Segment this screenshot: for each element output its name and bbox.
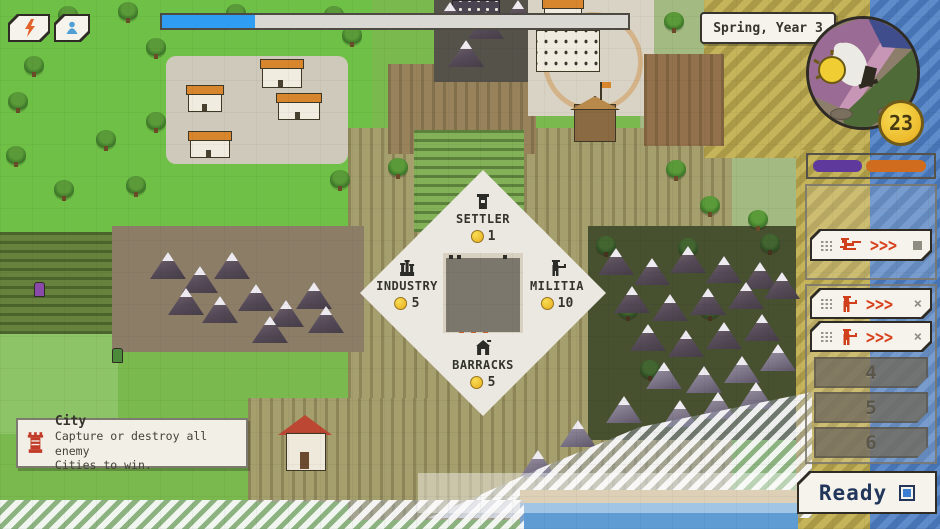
hold-icon[interactable]: [913, 241, 922, 250]
queue-slot-empty: 5: [814, 392, 928, 423]
radial-option-industry[interactable]: INDUSTRY 5: [376, 260, 438, 311]
dismiss-button[interactable]: ×: [914, 330, 922, 344]
radial-option-cost: 1: [471, 229, 496, 244]
sniper-unit-icon: [839, 238, 863, 253]
move-chevrons: >>>: [866, 325, 893, 348]
queue-row[interactable]: >>>: [810, 229, 932, 261]
coin-icon: [541, 297, 554, 310]
drag-handle-icon[interactable]: [820, 240, 832, 251]
score-pill-purple: [813, 160, 862, 172]
cost-value: 5: [412, 296, 420, 311]
radial-option-barracks[interactable]: BARRACKS 5: [452, 340, 514, 390]
industry-icon: [398, 260, 416, 276]
lightning-icon: [23, 19, 36, 37]
turn-progress-fill: [162, 15, 255, 28]
move-chevrons: >>>: [870, 234, 897, 257]
tooltip-city: City Capture or destroy all enemy Cities…: [16, 418, 248, 468]
power-button[interactable]: [8, 14, 50, 42]
radial-option-cost: 5: [395, 296, 420, 311]
ready-button[interactable]: Ready: [797, 471, 937, 514]
drag-handle-icon[interactable]: [820, 331, 832, 342]
city-icon: [26, 431, 45, 455]
turn-label: Spring, Year 3: [713, 21, 823, 36]
radial-option-militia[interactable]: MILITIA 10: [530, 260, 584, 311]
radial-option-label: SETTLER: [456, 212, 510, 226]
units-button[interactable]: [54, 14, 90, 42]
barracks-icon: [474, 340, 492, 355]
coin-icon: [471, 230, 484, 243]
coin-icon: [395, 297, 408, 310]
tooltip-title: City: [55, 414, 238, 430]
cost-value: 5: [488, 375, 496, 390]
sun-icon: [810, 48, 850, 88]
turn-progress-bar: [160, 13, 630, 30]
radial-option-label: BARRACKS: [452, 358, 514, 372]
move-chevrons: >>>: [866, 292, 893, 315]
cost-value: 1: [488, 229, 496, 244]
slot-number: 5: [865, 397, 876, 419]
coin-icon: [471, 376, 484, 389]
queue-row[interactable]: >>> ×: [810, 321, 932, 352]
score-pill-orange: [866, 160, 926, 172]
game-screen: SETTLER 1 INDUSTRY 5 MILITIA 10 BARRACKS…: [0, 0, 940, 529]
queue-slot-empty: 6: [814, 427, 928, 458]
unit-icon: [65, 21, 79, 35]
settler-icon: [474, 194, 492, 209]
slot-number: 6: [865, 432, 876, 454]
radial-option-label: MILITIA: [530, 279, 584, 293]
coin-counter: 23: [878, 100, 924, 146]
coin-count: 23: [889, 111, 913, 135]
soldier-unit-icon: [839, 296, 859, 312]
soldier-unit-icon: [839, 329, 859, 345]
slot-number: 4: [865, 362, 876, 384]
militia-icon: [547, 260, 567, 276]
radial-option-label: INDUSTRY: [376, 279, 438, 293]
tooltip-body: Cities to win.: [55, 458, 238, 472]
radial-option-cost: 5: [471, 375, 496, 390]
radial-build-menu: SETTLER 1 INDUSTRY 5 MILITIA 10 BARRACKS…: [358, 168, 608, 418]
ready-label: Ready: [819, 481, 887, 505]
cost-value: 10: [558, 296, 574, 311]
ready-checkbox-icon: [899, 485, 915, 501]
drag-handle-icon[interactable]: [820, 298, 832, 309]
score-bar: [806, 153, 936, 179]
tooltip-body: Capture or destroy all enemy: [55, 429, 238, 458]
radial-option-cost: 10: [541, 296, 574, 311]
queue-slot-empty: 4: [814, 357, 928, 388]
queue-row[interactable]: >>> ×: [810, 288, 932, 319]
radial-option-settler[interactable]: SETTLER 1: [456, 194, 510, 244]
dismiss-button[interactable]: ×: [914, 297, 922, 311]
